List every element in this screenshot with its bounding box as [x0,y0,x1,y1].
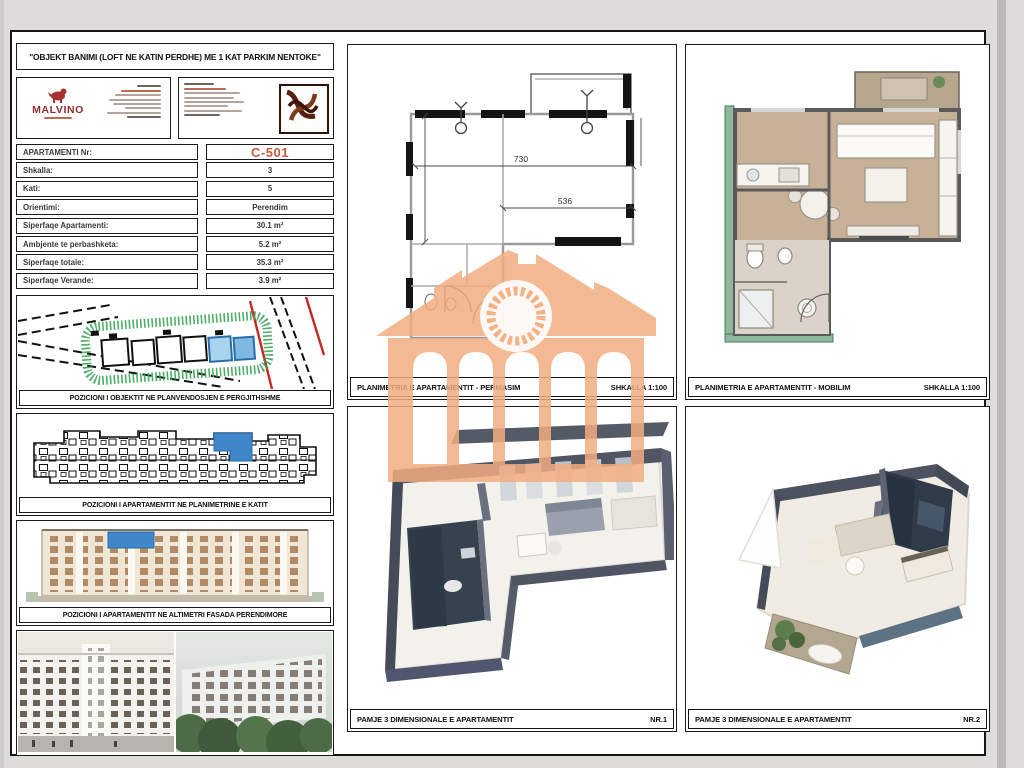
elevation-caption: POZICIONI I APARTAMENTIT NE ALTIMETRI FA… [19,607,331,623]
row-value: 5.2 m² [206,236,334,252]
plan-dimensioned-caption-bar: PLANIMETRIA E APARTAMENTIT - PERMASIM SH… [350,377,674,397]
view3d-1-number: NR.1 [650,715,667,724]
row-label: Kati: [16,181,198,197]
view3d-1-panel: PAMJE 3 DIMENSIONALE E APARTAMENTIT NR.1 [347,406,677,732]
row-label: APARTAMENTI Nr: [16,144,198,160]
investor-block: MALVINO [16,77,171,139]
elevation-panel: POZICIONI I APARTAMENTIT NE ALTIMETRI FA… [16,520,334,626]
designer-fineprint [184,81,276,119]
plan-furnished-scale: SHKALLA 1:100 [924,383,980,392]
view3d-2-caption-bar: PAMJE 3 DIMENSIONALE E APARTAMENTIT NR.2 [688,709,987,729]
sheet-title-box: "OBJEKT BANIMI (LOFT NE KATIN PERDHE) ME… [16,43,334,70]
row-value: 35.3 m² [206,254,334,270]
row-value: 5 [206,181,334,197]
row-label: Siperfaqe Apartamenti: [16,218,198,234]
furnished-plan-drawing [687,46,987,376]
apartment-number: C-501 [206,144,334,160]
plan-furnished-caption: PLANIMETRIA E APARTAMENTIT - MOBILIM [695,383,850,392]
view3d-1-caption: PAMJE 3 DIMENSIONALE E APARTAMENTIT [357,715,514,724]
view3d-2-panel: PAMJE 3 DIMENSIONALE E APARTAMENTIT NR.2 [685,406,990,732]
view3d-2-drawing [687,408,987,704]
malvino-emblem-icon [47,86,69,104]
malvino-logo: MALVINO [25,86,91,119]
row-value: Perendim [206,199,334,215]
drawing-sheet: "OBJEKT BANIMI (LOFT NE KATIN PERDHE) ME… [10,30,986,756]
site-plan-drawing [18,297,331,389]
row-label: Ambjente te perbashketa: [16,236,198,252]
dim-label-536: 536 [558,196,572,206]
row-value: 3 [206,162,334,178]
row-label: Siperfaqe totale: [16,254,198,270]
table-row: Siperfaqe totale: 35.3 m² [16,254,334,270]
dimensioned-plan-drawing: 730 536 [349,46,674,376]
plan-dimensioned-scale: SHKALLA 1:100 [611,383,667,392]
site-position-caption: POZICIONI I OBJEKTIT NE PLANVENDOSJEN E … [19,390,331,406]
table-row: APARTAMENTI Nr: C-501 [16,144,334,160]
row-value: 30.1 m² [206,218,334,234]
table-row: Orientimi: Perendim [16,199,334,215]
view3d-2-number: NR.2 [963,715,980,724]
building-renders [16,630,334,756]
floor-position-panel: POZICIONI I APARTAMENTIT NE PLANIMETRINE… [16,413,334,516]
plan-dimensioned-caption: PLANIMETRIA E APARTAMENTIT - PERMASIM [357,383,520,392]
table-row: Siperfaqe Verande: 3.9 m² [16,273,334,289]
designer-block [178,77,334,139]
render-street-view [18,632,174,752]
photo-edge-shadow-left [0,0,4,768]
brand-tagline-line [44,117,72,119]
view3d-1-caption-bar: PAMJE 3 DIMENSIONALE E APARTAMENTIT NR.1 [350,709,674,729]
render-garden-view [176,632,332,752]
designer-monogram-icon [279,84,329,134]
view3d-2-caption: PAMJE 3 DIMENSIONALE E APARTAMENTIT [695,715,852,724]
view3d-1-drawing [349,408,674,704]
table-row: Ambjente te perbashketa: 5.2 m² [16,236,334,252]
row-label: Orientimi: [16,199,198,215]
floor-plan-key-drawing [18,415,331,496]
row-value: 3.9 m² [206,273,334,289]
investor-fineprint [99,83,161,121]
site-position-panel: POZICIONI I OBJEKTIT NE PLANVENDOSJEN E … [16,295,334,409]
malvino-wordmark: MALVINO [25,104,91,116]
photo-edge-shadow [997,0,1006,768]
table-row: Shkalla: 3 [16,162,334,178]
floor-position-caption: POZICIONI I APARTAMENTIT NE PLANIMETRINE… [19,497,331,513]
plan-dimensioned-panel: 730 536 PLANIMETRIA E APARTAMENTIT - PER… [347,44,677,400]
elevation-drawing [18,522,331,606]
plan-furnished-caption-bar: PLANIMETRIA E APARTAMENTIT - MOBILIM SHK… [688,377,987,397]
table-row: Kati: 5 [16,181,334,197]
plan-furnished-panel: PLANIMETRIA E APARTAMENTIT - MOBILIM SHK… [685,44,990,400]
row-label: Shkalla: [16,162,198,178]
row-label: Siperfaqe Verande: [16,273,198,289]
table-row: Siperfaqe Apartamenti: 30.1 m² [16,218,334,234]
dim-label-730: 730 [514,154,528,164]
sheet-title: "OBJEKT BANIMI (LOFT NE KATIN PERDHE) ME… [29,52,321,62]
